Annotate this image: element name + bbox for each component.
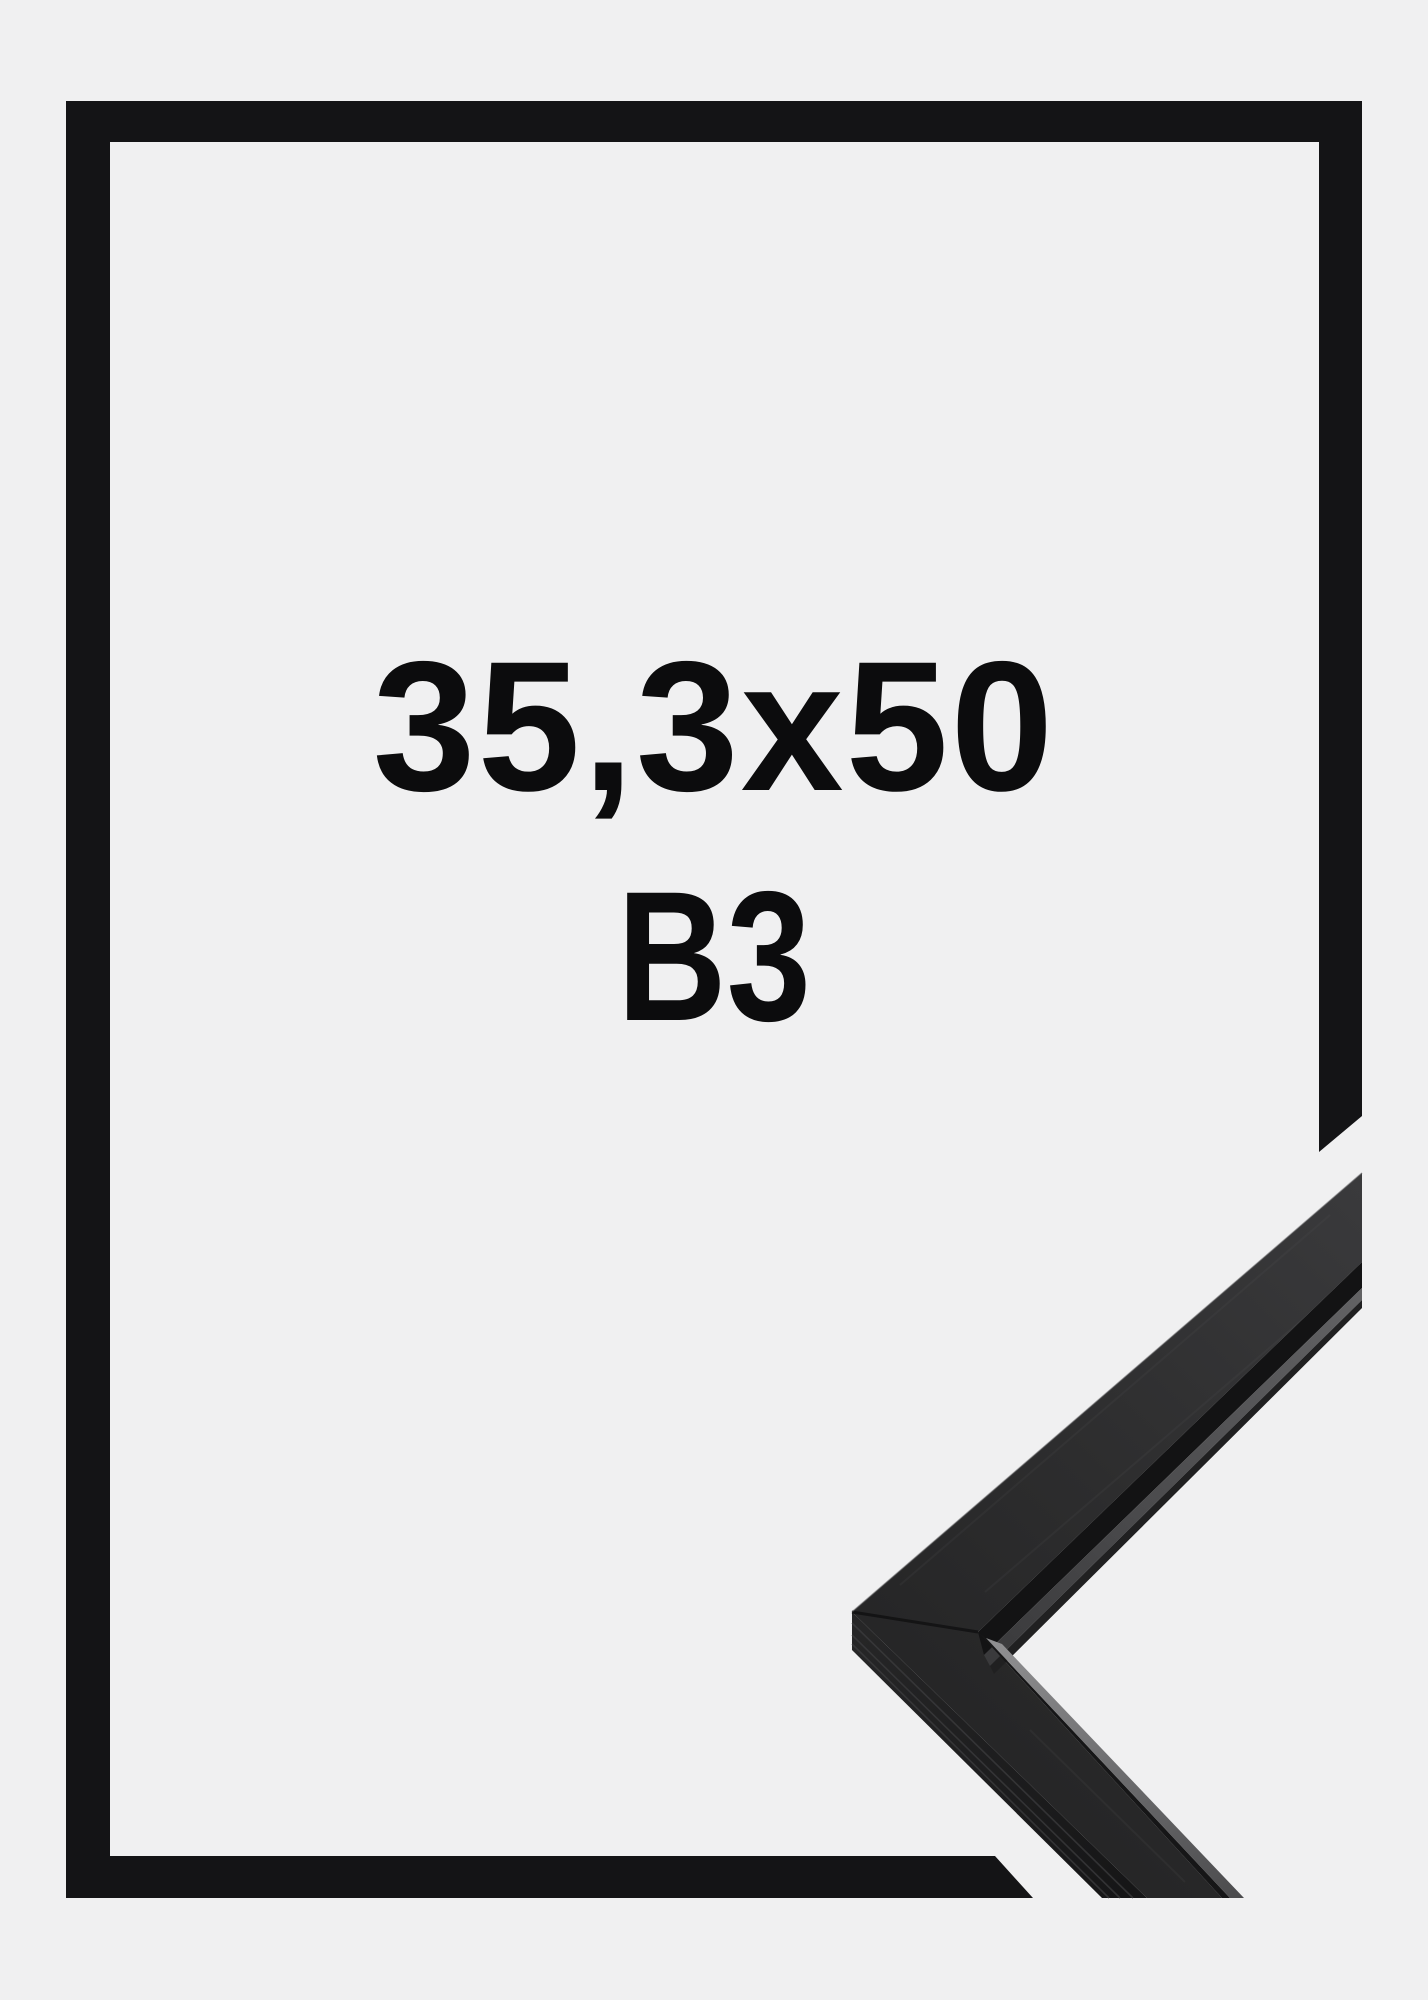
frame-border-bottom [66, 1856, 1033, 1898]
size-label: 35,3x50 [0, 635, 1428, 820]
frame-border-right [1319, 101, 1362, 1152]
product-image-frame-mockup: 35,3x50 B3 [0, 0, 1428, 2000]
frame-border-top [66, 101, 1362, 142]
moulding-corner-photo [852, 1173, 1362, 1898]
format-label: B3 [129, 865, 1300, 1050]
frame-border-left [66, 101, 110, 1898]
